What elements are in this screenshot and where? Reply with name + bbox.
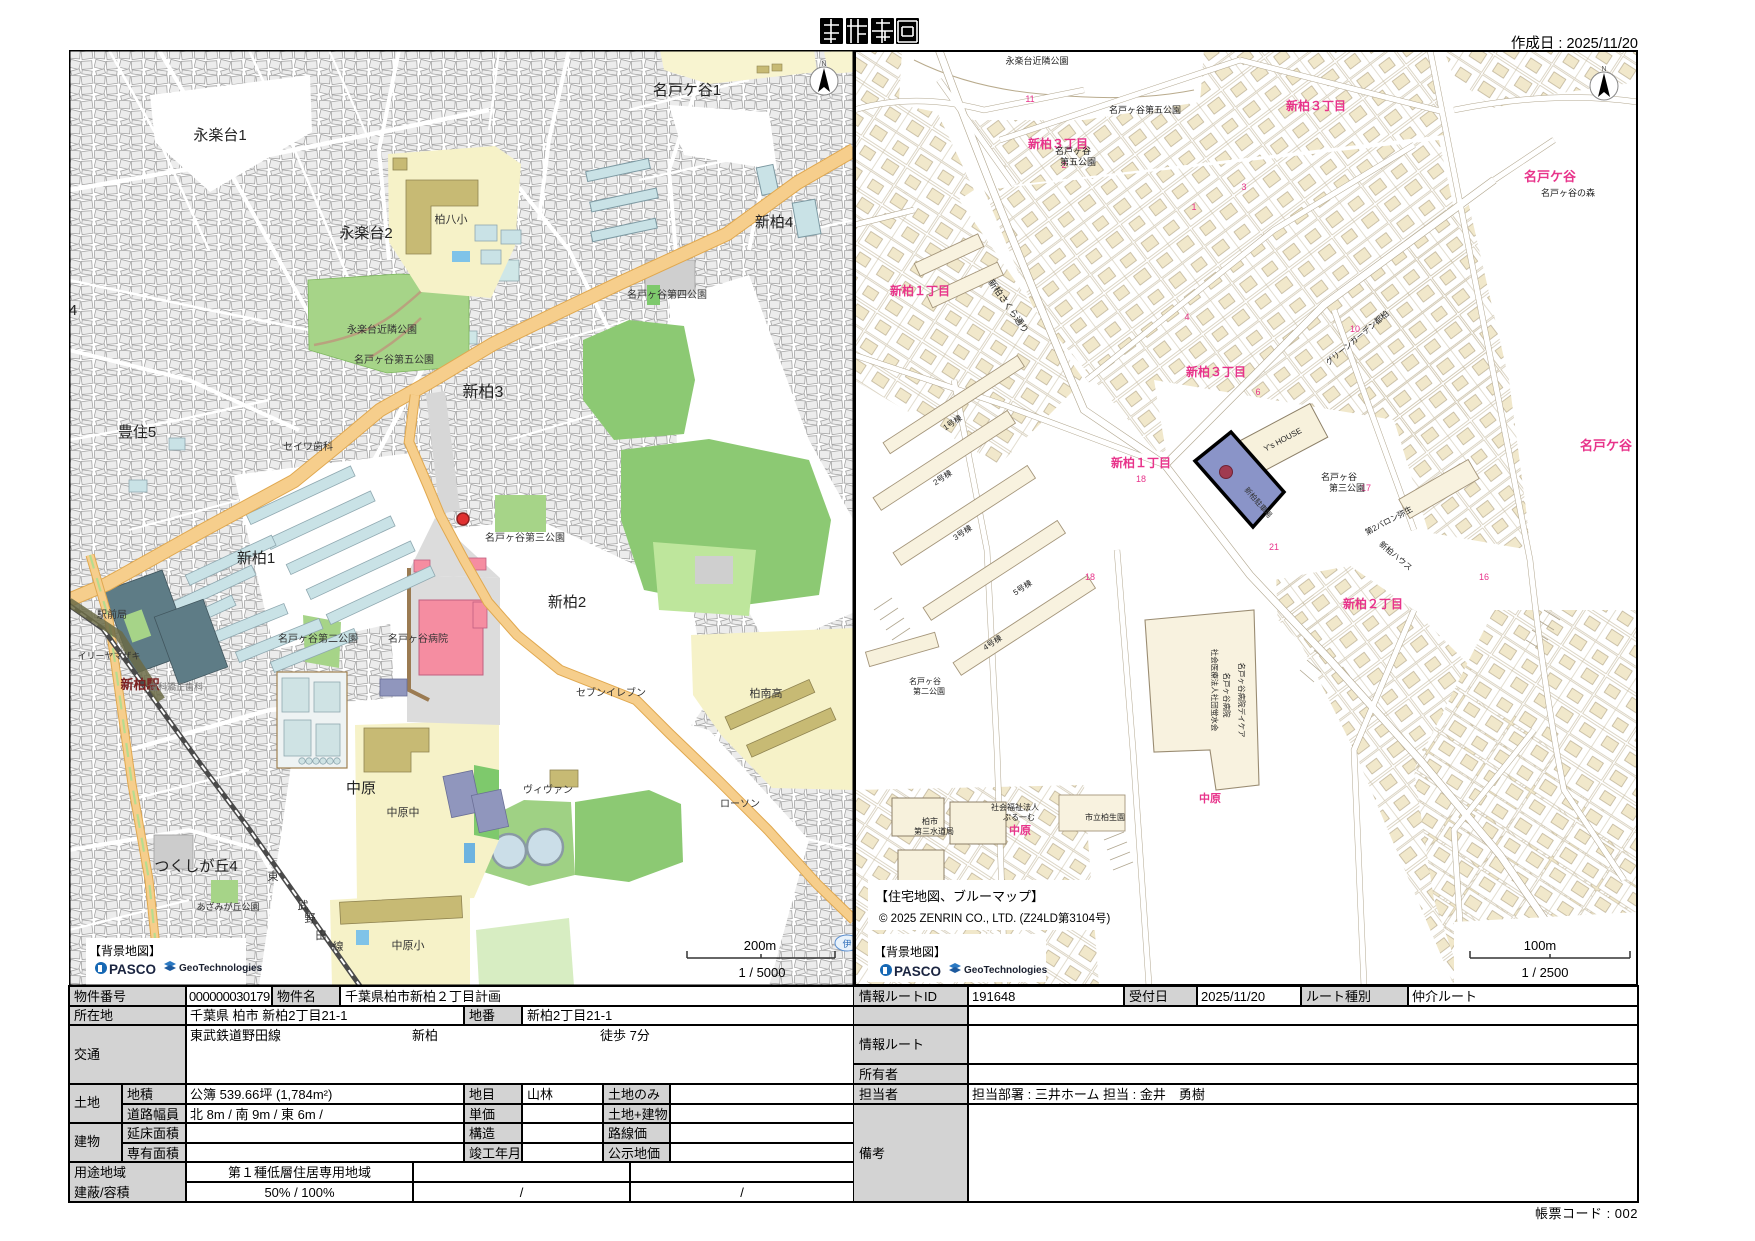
- svg-text:市立柏生園: 市立柏生園: [1085, 812, 1125, 822]
- svg-text:GeoTechnologies: GeoTechnologies: [179, 963, 263, 974]
- svg-text:11: 11: [1025, 94, 1034, 104]
- svg-text:武: 武: [298, 899, 309, 912]
- svg-text:3: 3: [1241, 182, 1246, 192]
- svg-text:PASCO: PASCO: [109, 962, 156, 977]
- svg-text:名戸ケ谷: 名戸ケ谷: [1580, 438, 1633, 453]
- svg-text:永楽台近隣公園: 永楽台近隣公園: [1005, 55, 1068, 66]
- svg-text:【住宅地図、ブルーマップ】: 【住宅地図、ブルーマップ】: [875, 889, 1044, 904]
- svg-text:6: 6: [1255, 387, 1260, 397]
- svg-text:1 / 5000: 1 / 5000: [739, 965, 786, 980]
- svg-text:1 / 2500: 1 / 2500: [1522, 965, 1569, 980]
- svg-text:名戸ヶ谷病院: 名戸ヶ谷病院: [1222, 673, 1232, 718]
- svg-text:PASCO: PASCO: [894, 964, 941, 979]
- svg-text:N: N: [821, 61, 826, 68]
- svg-text:つくしが丘4: つくしが丘4: [154, 858, 237, 875]
- svg-text:ぷる一む: ぷる一む: [1003, 813, 1035, 822]
- svg-text:柏八小: 柏八小: [435, 212, 468, 226]
- svg-text:100m: 100m: [1524, 938, 1557, 953]
- svg-text:N: N: [1601, 66, 1606, 73]
- svg-text:第三公園: 第三公園: [1329, 482, 1365, 493]
- svg-text:18: 18: [1085, 572, 1095, 582]
- svg-text:4: 4: [1184, 312, 1189, 322]
- svg-text:第二公園: 第二公園: [913, 686, 945, 696]
- svg-text:名戸ヶ谷: 名戸ヶ谷: [1055, 145, 1091, 156]
- svg-text:新柏4: 新柏4: [755, 214, 793, 231]
- svg-text:名戸ヶ谷第二公園: 名戸ヶ谷第二公園: [278, 632, 358, 645]
- svg-text:名戸ヶ谷第四公園: 名戸ヶ谷第四公園: [627, 288, 707, 301]
- svg-text:ローソン: ローソン: [720, 799, 760, 810]
- svg-text:柏市: 柏市: [922, 816, 938, 826]
- svg-text:名戸ヶ谷第五公園: 名戸ヶ谷第五公園: [1109, 104, 1181, 115]
- svg-text:東: 東: [268, 870, 279, 883]
- svg-text:名戸ケ谷: 名戸ケ谷: [1524, 169, 1577, 184]
- svg-text:第三水道局: 第三水道局: [914, 826, 954, 836]
- svg-text:中原中: 中原中: [387, 806, 420, 819]
- svg-text:あざみが丘公園: あざみが丘公園: [196, 901, 259, 912]
- svg-text:セブンイレブン: セブンイレブン: [576, 686, 646, 699]
- svg-text:新柏2: 新柏2: [548, 594, 586, 611]
- svg-text:セイワ歯科: セイワ歯科: [283, 440, 333, 453]
- svg-text:永楽台1: 永楽台1: [193, 127, 246, 144]
- svg-text:歯科矯正歯科: 歯科矯正歯科: [149, 681, 203, 692]
- svg-text:21: 21: [1269, 542, 1279, 552]
- svg-text:【背景地図】: 【背景地図】: [874, 945, 946, 959]
- svg-text:名戸ヶ谷の森: 名戸ヶ谷の森: [1541, 187, 1595, 198]
- svg-text:ヴィヴァン: ヴィヴァン: [523, 783, 573, 796]
- svg-text:新柏２丁目: 新柏２丁目: [1343, 596, 1403, 611]
- svg-text:永楽台2: 永楽台2: [339, 225, 392, 242]
- svg-text:新柏3: 新柏3: [463, 383, 504, 401]
- svg-text:名戸ヶ谷病院デイケア: 名戸ヶ谷病院デイケア: [1237, 663, 1247, 738]
- svg-text:柏南高: 柏南高: [750, 686, 783, 700]
- svg-text:第五公園: 第五公園: [1060, 156, 1096, 167]
- svg-text:新柏1: 新柏1: [237, 550, 275, 567]
- svg-text:名戸ヶ谷: 名戸ヶ谷: [909, 676, 941, 686]
- svg-text:名戸ヶ谷病院: 名戸ヶ谷病院: [388, 632, 448, 645]
- svg-text:18: 18: [1136, 474, 1146, 484]
- svg-text:豊住5: 豊住5: [118, 424, 156, 441]
- svg-text:【背景地図】: 【背景地図】: [89, 944, 161, 958]
- svg-text:田: 田: [316, 930, 327, 942]
- svg-text:新柏１丁目: 新柏１丁目: [1111, 455, 1171, 470]
- svg-text:新柏１丁目: 新柏１丁目: [890, 283, 950, 298]
- svg-text:線: 線: [333, 939, 344, 953]
- svg-text:社会医療法人社団蛍水会: 社会医療法人社団蛍水会: [1210, 649, 1220, 732]
- svg-text:中原: 中原: [346, 780, 376, 797]
- svg-text:名戸ケ谷1: 名戸ケ谷1: [653, 82, 721, 99]
- svg-text:中原: 中原: [1009, 823, 1031, 837]
- svg-text:野: 野: [305, 912, 316, 925]
- svg-text:16: 16: [1479, 572, 1489, 582]
- svg-text:© 2025 ZENRIN CO., LTD. (Z24LD: © 2025 ZENRIN CO., LTD. (Z24LD第3104号): [879, 911, 1110, 925]
- svg-text:名戸ヶ谷: 名戸ヶ谷: [1321, 471, 1357, 482]
- svg-text:名戸ヶ谷第三公園: 名戸ヶ谷第三公園: [485, 531, 565, 544]
- svg-text:GeoTechnologies: GeoTechnologies: [964, 965, 1048, 976]
- svg-text:社会福祉法人: 社会福祉法人: [991, 802, 1039, 812]
- svg-text:新柏３丁目: 新柏３丁目: [1286, 98, 1346, 113]
- svg-text:中原: 中原: [1199, 791, 1221, 805]
- svg-text:中原小: 中原小: [392, 939, 425, 952]
- svg-text:イリーヤマザキ: イリーヤマザキ: [77, 651, 140, 661]
- svg-text:200m: 200m: [744, 938, 777, 953]
- svg-text:1: 1: [1191, 202, 1196, 212]
- svg-text:駅前局: 駅前局: [97, 608, 127, 621]
- svg-text:名戸ヶ谷第五公園: 名戸ヶ谷第五公園: [354, 353, 434, 366]
- svg-text:伊: 伊: [842, 938, 851, 949]
- svg-text:新柏３丁目: 新柏３丁目: [1186, 364, 1246, 379]
- svg-text:永楽台近隣公園: 永楽台近隣公園: [347, 323, 417, 336]
